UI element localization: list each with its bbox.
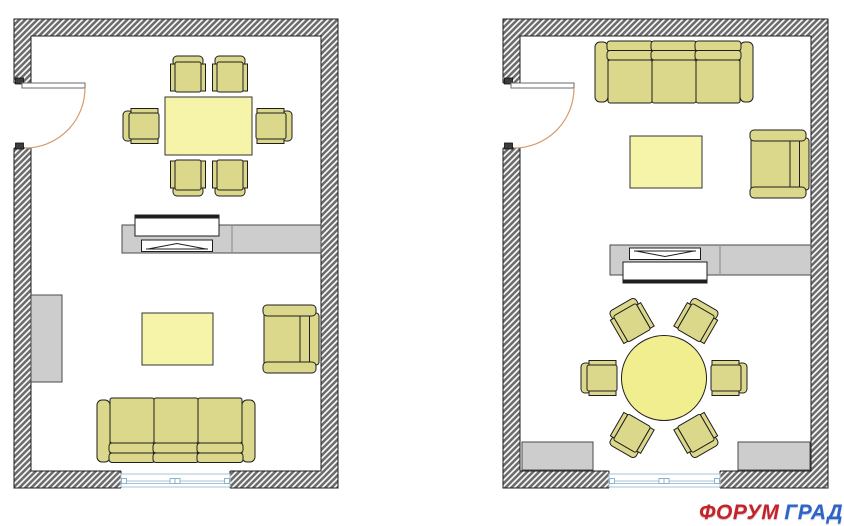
- chair-side: [171, 161, 176, 188]
- sofa-back-cushion: [153, 443, 199, 453]
- chair-side: [213, 64, 218, 91]
- armchair: [750, 130, 809, 198]
- watermark: ФОРУМГРАД: [699, 502, 843, 523]
- chair-seat: [217, 160, 243, 190]
- chair-side: [589, 391, 616, 396]
- chair-side: [257, 109, 284, 114]
- dining-chair: [213, 56, 248, 92]
- sofa-back-cushion: [607, 41, 653, 51]
- sofa-back-cushion: [695, 51, 741, 61]
- coffee-table: [142, 313, 213, 365]
- sofa-three-seat: [595, 41, 753, 103]
- sofa-seat-cushion: [198, 398, 242, 443]
- armchair-back: [790, 138, 800, 190]
- armchair-back: [800, 138, 810, 190]
- right-floor-plan: [502, 19, 828, 489]
- dining-chair: [213, 160, 248, 196]
- sofa-back-cushion: [695, 41, 741, 51]
- sofa-armrest: [740, 42, 753, 102]
- sofa-three-seat: [97, 398, 255, 463]
- chair-seat: [587, 365, 617, 391]
- sofa-armrest: [97, 400, 110, 462]
- sofa-back-cushion: [651, 41, 697, 51]
- dining-chair: [256, 109, 292, 144]
- armchair-armrest: [263, 305, 316, 316]
- window-handle-mark: [170, 479, 175, 484]
- chair-side: [257, 139, 284, 144]
- coffee-table: [630, 136, 702, 188]
- sofa-back-cushion: [109, 453, 155, 463]
- sofa-back-cushion: [607, 51, 653, 61]
- sofa-back-cushion: [153, 453, 199, 463]
- window-handle-mark: [122, 479, 127, 484]
- window-handle-mark: [664, 479, 669, 484]
- dining-chair: [711, 361, 747, 396]
- wall-cabinet: [31, 295, 62, 382]
- door-opening: [13, 83, 32, 148]
- window-handle-mark: [610, 479, 615, 484]
- chair-side: [201, 64, 206, 91]
- floor-plans-canvas: ФОРУМГРАД: [0, 0, 844, 526]
- sofa-armrest: [242, 400, 255, 462]
- armchair-seat: [264, 315, 300, 363]
- door-jamb-block: [16, 143, 24, 149]
- dining-chair: [171, 160, 206, 196]
- watermark-word-forum: ФОРУМ: [699, 501, 779, 524]
- chair-seat: [217, 62, 243, 92]
- sofa-seat-cushion: [652, 60, 696, 103]
- chair-side: [131, 109, 158, 114]
- dining-chair: [123, 109, 159, 144]
- window-handle-mark: [175, 479, 180, 484]
- sofa-seat-cushion: [696, 60, 740, 103]
- armchair-armrest: [750, 130, 806, 141]
- armchair-armrest: [750, 187, 806, 198]
- chair-side: [712, 361, 739, 366]
- sofa-back-cushion: [109, 443, 155, 453]
- armchair-armrest: [263, 362, 316, 373]
- window-handle-mark: [715, 479, 720, 484]
- door-leaf: [511, 83, 574, 88]
- watermark-word-grad: ГРАД: [784, 501, 843, 524]
- chair-side: [589, 361, 616, 366]
- dining-chair: [581, 361, 617, 396]
- door-jamb-block: [505, 143, 513, 149]
- door-opening: [502, 83, 521, 148]
- sofa-seat-cushion: [154, 398, 198, 443]
- chair-side: [213, 161, 218, 188]
- armchair: [263, 305, 319, 373]
- chair-seat: [256, 113, 286, 139]
- armchair-back: [310, 313, 320, 365]
- dining-chair: [171, 56, 206, 92]
- chair-seat: [129, 113, 159, 139]
- round-dining-table: [622, 336, 707, 421]
- tv-base: [630, 248, 701, 260]
- chair-side: [171, 64, 176, 91]
- corner-cabinet: [522, 442, 593, 470]
- armchair-seat: [751, 140, 790, 188]
- chair-seat: [175, 160, 201, 190]
- chair-side: [243, 64, 248, 91]
- tv-base: [142, 240, 213, 252]
- chair-side: [131, 139, 158, 144]
- left-floor-plan: [13, 19, 338, 489]
- dining-table: [165, 97, 252, 155]
- chair-seat: [175, 62, 201, 92]
- chair-seat: [711, 365, 741, 391]
- sofa-seat-cushion: [608, 60, 652, 103]
- sofa-seat-cushion: [110, 398, 154, 443]
- chair-side: [712, 391, 739, 396]
- sofa-armrest: [595, 42, 608, 102]
- window-handle-mark: [225, 479, 230, 484]
- floor-plan-drawing: [0, 0, 844, 526]
- armchair-back: [300, 313, 310, 365]
- door-leaf: [22, 83, 85, 88]
- sofa-back-cushion: [197, 453, 243, 463]
- sofa-back-cushion: [651, 51, 697, 61]
- window-handle-mark: [659, 479, 664, 484]
- sofa-back-cushion: [197, 443, 243, 453]
- tv-screen-front: [135, 215, 219, 219]
- tv-screen-front: [623, 280, 707, 284]
- chair-side: [201, 161, 206, 188]
- chair-side: [243, 161, 248, 188]
- corner-cabinet: [738, 442, 810, 470]
